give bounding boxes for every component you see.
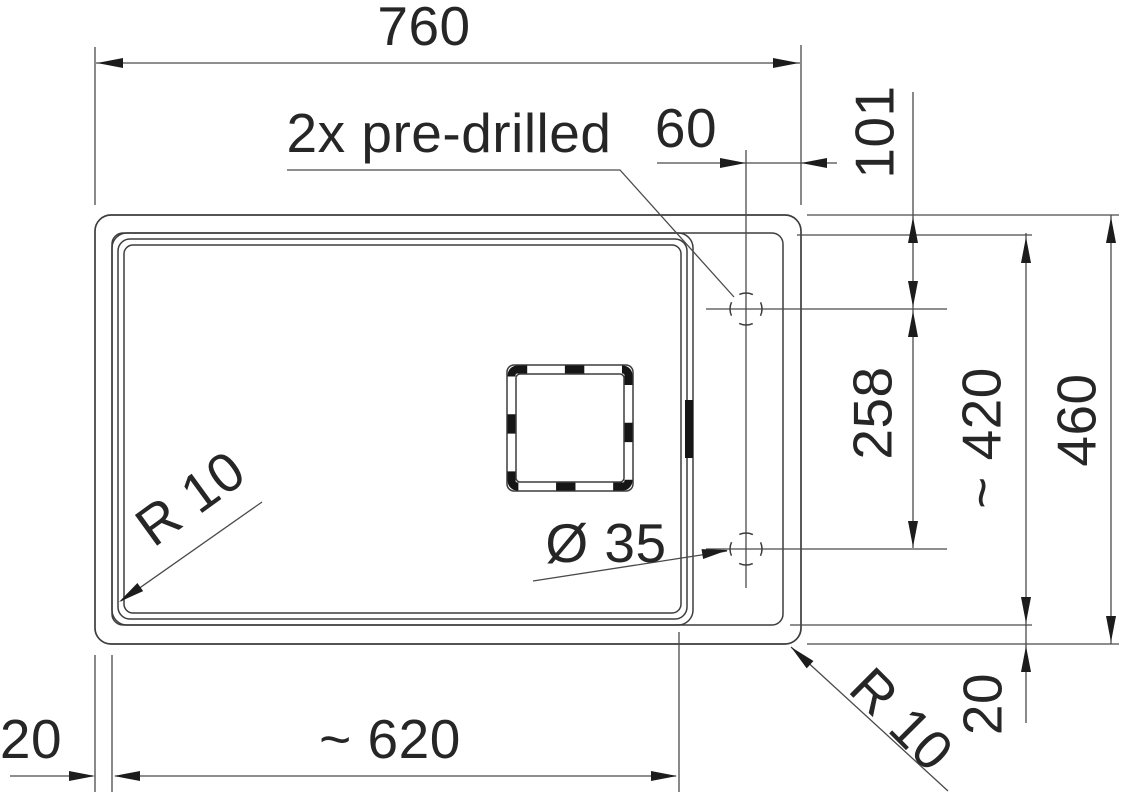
drain-square: [507, 365, 633, 491]
sink-outline: [95, 215, 801, 644]
dim-hole-right-offset-label: 60: [655, 97, 717, 159]
radius-bowl-label: R 10: [124, 438, 256, 558]
drain-square-dashes: [512, 370, 629, 487]
dim-total-width-label: 760: [377, 0, 470, 57]
pre-drilled-note-label: 2x pre-drilled: [287, 102, 612, 164]
dim-bottom-margin-label: 20: [951, 673, 1013, 735]
sink-dimension-diagram: 760 2x pre-drilled 60 101 258 ~ 420 460 …: [0, 0, 1124, 800]
dim-hole-diameter-label: Ø 35: [545, 512, 666, 574]
dimension-labels: 760 2x pre-drilled 60 101 258 ~ 420 460 …: [0, 0, 1107, 783]
drain-square-outer-line: [507, 365, 633, 491]
dim-hole-spacing-label: 258: [841, 366, 903, 459]
dim-bowl-width-label: ~ 620: [319, 708, 461, 770]
dim-total-height-label: 460: [1045, 373, 1107, 466]
dim-cutout-height-label: ~ 420: [950, 367, 1012, 509]
radius-outer-label: R 10: [838, 655, 965, 782]
worktop-cutout-line: [112, 233, 783, 625]
sink-outer-edge: [95, 215, 801, 644]
dim-left-margin-label: 20: [0, 708, 62, 770]
overflow-marker-bar: [685, 400, 693, 458]
drain-square-inner-line: [516, 374, 624, 482]
technical-drawing-canvas: 760 2x pre-drilled 60 101 258 ~ 420 460 …: [0, 0, 1124, 800]
dim-hole-top-offset-label: 101: [843, 85, 905, 178]
